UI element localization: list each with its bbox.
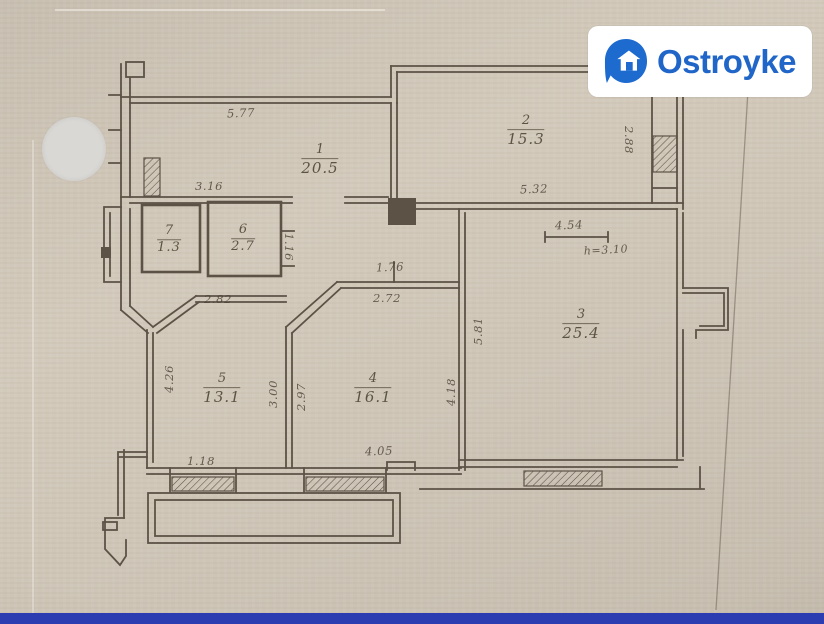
ostroyke-logo-text: Ostroyke (657, 43, 796, 81)
room-number: 5 (203, 372, 240, 388)
room-label-7: 7 1.3 (157, 224, 181, 256)
dim-hall-width: 3.16 (195, 179, 223, 193)
dim-room5-window: 1.18 (187, 454, 215, 468)
dim-room3-width: 4.54 (555, 218, 583, 233)
room-number: 4 (354, 372, 391, 388)
scan-crease-left (32, 140, 34, 624)
room-label-4: 4 16.1 (354, 372, 391, 406)
room-area: 25.4 (562, 324, 599, 342)
room-number: 7 (157, 224, 181, 240)
dim-room4-left-depth: 2.97 (294, 383, 308, 411)
dim-room4-width: 4.05 (365, 444, 393, 459)
dim-room4-right-depth: 4.18 (444, 378, 458, 406)
room-area: 2.7 (231, 240, 255, 255)
room-label-1: 1 20.5 (301, 143, 338, 177)
dim-room5-right-depth: 3.00 (266, 380, 280, 408)
dim-room3-left-depth: 5.81 (471, 317, 485, 345)
bottom-blue-bar (0, 613, 824, 624)
balcony-outline (148, 493, 400, 543)
room-label-5: 5 13.1 (203, 372, 240, 406)
dim-room2-depth: 2.88 (622, 126, 636, 154)
redaction-circle (42, 117, 106, 181)
ostroyke-logo-icon (604, 38, 648, 86)
scan-crease-top (55, 9, 385, 11)
room-area: 20.5 (301, 159, 338, 177)
wall-column (388, 198, 416, 225)
room-number: 2 (507, 114, 544, 130)
room-area: 15.3 (507, 130, 544, 148)
dim-hall-seg-lower: 2.72 (373, 291, 401, 305)
dim-room5-top-width: 2.82 (204, 292, 232, 306)
room-area: 13.1 (203, 388, 240, 406)
dim-room2-width: 5.32 (520, 182, 548, 197)
room-number: 6 (231, 223, 255, 239)
dim-room6-door: 1.16 (282, 233, 296, 261)
scan-crease-diagonal (716, 58, 750, 610)
dim-hall-seg-upper: 1.76 (376, 260, 404, 275)
room-number: 1 (301, 143, 338, 159)
entry-door-mark (101, 247, 111, 258)
room-area: 16.1 (354, 388, 391, 406)
dim-room1-width: 5.77 (227, 106, 255, 121)
room-number: 3 (562, 308, 599, 324)
room-label-3: 3 25.4 (562, 308, 599, 342)
inner-walls (121, 103, 608, 470)
room-area: 1.3 (157, 241, 181, 256)
room-label-2: 2 15.3 (507, 114, 544, 148)
ostroyke-logo[interactable]: Ostroyke (588, 26, 812, 97)
scanned-floor-plan-page: 1 20.5 2 15.3 3 25.4 4 16.1 5 13.1 6 2.7… (0, 0, 824, 624)
room-label-6: 6 2.7 (231, 223, 255, 255)
dim-room5-left-depth: 4.26 (162, 365, 176, 393)
dim-ceiling-height: h=3.10 (583, 242, 628, 257)
